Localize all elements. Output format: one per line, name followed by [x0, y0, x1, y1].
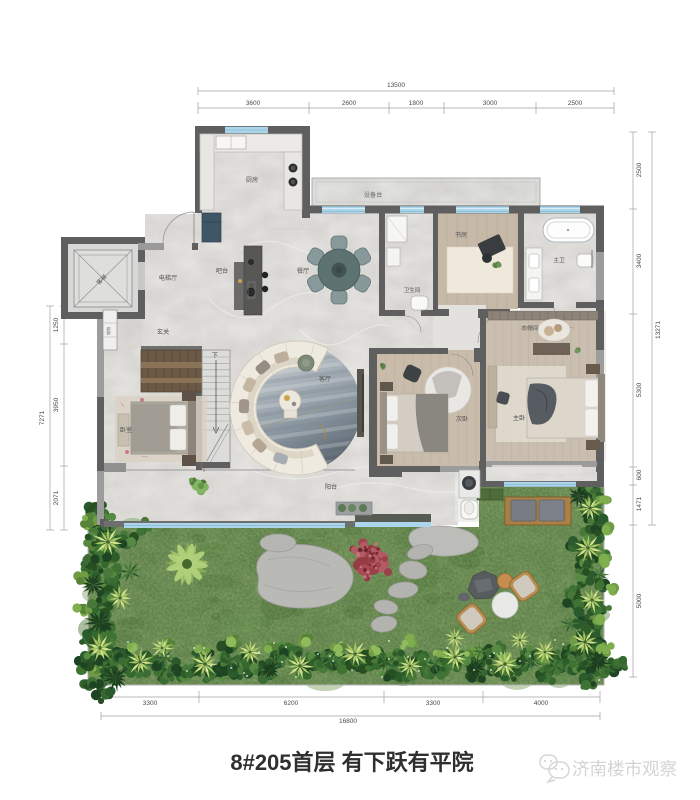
svg-text:8#205首层 有下跃有平院: 8#205首层 有下跃有平院 — [230, 750, 473, 775]
svg-text:书房: 书房 — [455, 231, 467, 239]
svg-text:1800: 1800 — [409, 100, 424, 107]
svg-text:主卫: 主卫 — [553, 256, 565, 264]
svg-text:5000: 5000 — [636, 593, 643, 608]
svg-text:下: 下 — [212, 353, 218, 360]
svg-text:3300: 3300 — [143, 700, 158, 707]
svg-text:13500: 13500 — [387, 82, 405, 89]
svg-text:次卧: 次卧 — [456, 415, 468, 423]
svg-text:3950: 3950 — [53, 397, 60, 412]
svg-text:厨房: 厨房 — [246, 176, 258, 184]
svg-text:2500: 2500 — [568, 100, 583, 107]
svg-text:1250: 1250 — [53, 317, 60, 332]
svg-text:3300: 3300 — [426, 700, 441, 707]
svg-text:2071: 2071 — [53, 490, 60, 505]
svg-text:5300: 5300 — [636, 382, 643, 397]
svg-text:主卧: 主卧 — [513, 414, 525, 422]
svg-text:客厅: 客厅 — [319, 375, 331, 383]
svg-text:6200: 6200 — [284, 700, 299, 707]
svg-text:卧室: 卧室 — [120, 426, 132, 434]
svg-text:2500: 2500 — [636, 162, 643, 177]
svg-text:阳台: 阳台 — [325, 483, 337, 491]
svg-text:16800: 16800 — [339, 718, 357, 725]
svg-text:600: 600 — [636, 469, 643, 480]
svg-text:卫生间: 卫生间 — [404, 286, 421, 294]
svg-text:7271: 7271 — [39, 410, 46, 425]
svg-text:1471: 1471 — [636, 496, 643, 511]
svg-text:玄关: 玄关 — [157, 328, 169, 336]
svg-text:餐厅: 餐厅 — [297, 267, 309, 275]
svg-text:4000: 4000 — [534, 700, 549, 707]
svg-text:2600: 2600 — [342, 100, 357, 107]
svg-text:3400: 3400 — [636, 253, 643, 268]
svg-text:吧台: 吧台 — [216, 267, 228, 275]
svg-text:3600: 3600 — [246, 100, 261, 107]
svg-text:13271: 13271 — [655, 321, 662, 339]
svg-text:济南楼市观察: 济南楼市观察 — [572, 759, 677, 779]
svg-text:衣帽间: 衣帽间 — [521, 324, 539, 332]
svg-text:3000: 3000 — [483, 100, 498, 107]
svg-text:储物: 储物 — [105, 327, 112, 335]
svg-text:电梯厅: 电梯厅 — [159, 274, 178, 282]
